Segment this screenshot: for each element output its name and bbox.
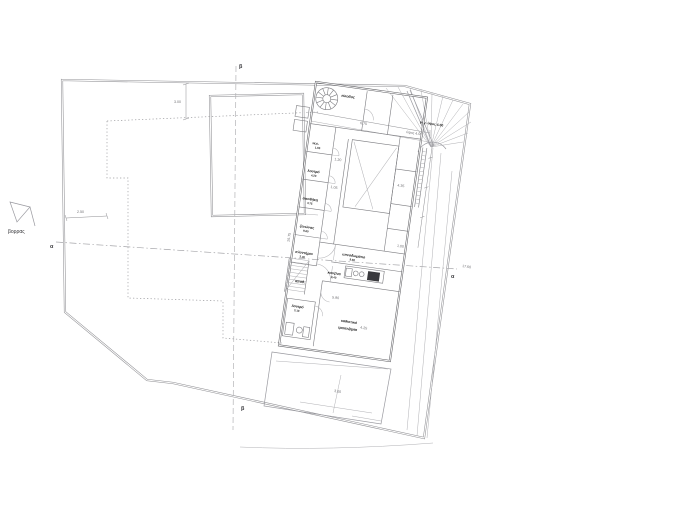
dim-living: 4.25 xyxy=(360,326,367,331)
burner-icon xyxy=(359,272,364,277)
door-arc xyxy=(332,148,340,156)
dim-bed: 4.35 xyxy=(397,183,404,188)
extension-line xyxy=(407,148,433,430)
dim-terrace: 3.00 xyxy=(334,389,342,394)
dim-section-line: 17.60 xyxy=(462,264,472,269)
void-room-diagonals xyxy=(345,142,396,211)
door-arc xyxy=(324,203,332,211)
room-area: 3.75 xyxy=(307,201,313,206)
section-line-beta: β β xyxy=(233,64,245,430)
dim-entry-width: 6.75 xyxy=(360,121,368,126)
interior-walls xyxy=(280,84,427,357)
door-arc xyxy=(363,109,374,120)
wall-line xyxy=(334,139,349,244)
wall-line xyxy=(310,124,421,140)
floor-plan-drawing: α α 17.60 β β βορρας 3.00 2.50 6.75 μεγ.… xyxy=(0,0,700,529)
spiral-stair-treads xyxy=(314,86,339,111)
spiral-stair-outer xyxy=(314,86,339,111)
door-arc xyxy=(314,306,324,316)
building-outer-wall-core xyxy=(279,82,427,361)
section-beta-marker-bottom: β xyxy=(241,406,245,412)
pool-outline xyxy=(210,94,305,216)
section-beta-marker-top: β xyxy=(239,64,243,70)
side-stair-treads xyxy=(415,151,426,203)
door-arc xyxy=(320,291,331,302)
building-outer-wall xyxy=(279,82,427,361)
wall-line xyxy=(384,136,421,254)
appliance-icon xyxy=(367,271,380,282)
pool-outline-core xyxy=(210,94,305,216)
north-arrow: βορρας xyxy=(8,202,35,235)
extension-line xyxy=(427,171,452,438)
fan-stair-treads xyxy=(386,87,471,147)
setback-top xyxy=(107,112,318,121)
north-arrow-icon xyxy=(10,202,30,222)
room-area: 9.80 xyxy=(349,257,355,262)
room-label: είσοδος xyxy=(341,94,355,100)
door-arc xyxy=(320,231,328,239)
section-alpha-marker-left: α xyxy=(50,244,54,250)
toilet-icon xyxy=(302,327,309,338)
room-area: 1.80 xyxy=(315,146,321,151)
extension-line xyxy=(417,153,441,436)
dim-side-wall: 26.75 xyxy=(287,233,292,242)
building: w.c. 1.80 λουτρό 4.20 αποθήκη 3.75 ξενών… xyxy=(263,80,441,363)
spiral-stair-icon xyxy=(314,86,339,111)
setback-left xyxy=(107,121,282,343)
spiral-stair-core xyxy=(322,94,331,103)
room-area: 2.40 xyxy=(299,254,305,259)
planter-boxes xyxy=(293,106,309,133)
dim-plot-left: 2.50 xyxy=(77,210,84,214)
room-label: τραπεζαρία xyxy=(338,325,358,332)
bathroom-fixtures xyxy=(285,322,310,337)
floor-plan-page: α α 17.60 β β βορρας 3.00 2.50 6.75 μεγ.… xyxy=(0,0,700,529)
site-dimensions: 3.00 2.50 6.75 xyxy=(65,83,430,221)
room-area: 3.10 xyxy=(294,308,300,313)
section-line-alpha: α α 17.60 xyxy=(50,242,471,280)
terrace-line xyxy=(276,361,388,369)
section-beta-line xyxy=(233,66,236,430)
dim-living-width: 5.90 xyxy=(332,295,339,300)
sink-icon xyxy=(345,268,352,277)
dim-shaft: 1.00 xyxy=(397,244,404,249)
sink-icon xyxy=(296,327,303,334)
section-alpha-marker-right: α xyxy=(451,274,455,280)
dim-line-plot-top xyxy=(183,83,189,120)
dim-plot-top: 3.00 xyxy=(174,100,181,104)
dim-cell: 1.20 xyxy=(334,157,341,162)
room-label: καθιστικό xyxy=(341,319,358,325)
terrace-line xyxy=(300,402,372,413)
north-label: βορρας xyxy=(8,229,25,235)
pool-edge-extension xyxy=(305,214,318,215)
north-arrow-tail xyxy=(30,207,35,226)
door-arc xyxy=(328,176,336,184)
road-edge-line xyxy=(240,443,433,448)
room-area: 8.40 xyxy=(331,275,337,280)
door-arc xyxy=(318,242,336,260)
room-area: 9.60 xyxy=(303,229,309,234)
dim-line-plot-left xyxy=(65,213,108,221)
wall-line xyxy=(362,91,393,134)
door-swings xyxy=(310,105,375,319)
shower-icon xyxy=(285,322,295,335)
dim-cell2: 1.05 xyxy=(330,185,337,190)
burner-icon xyxy=(353,271,358,276)
fan-stair: μεγ. ύψος 4.00 ύψος 4.00 xyxy=(386,87,471,152)
room-area: 4.20 xyxy=(311,173,317,178)
lower-terrace: 3.00 xyxy=(264,352,391,424)
